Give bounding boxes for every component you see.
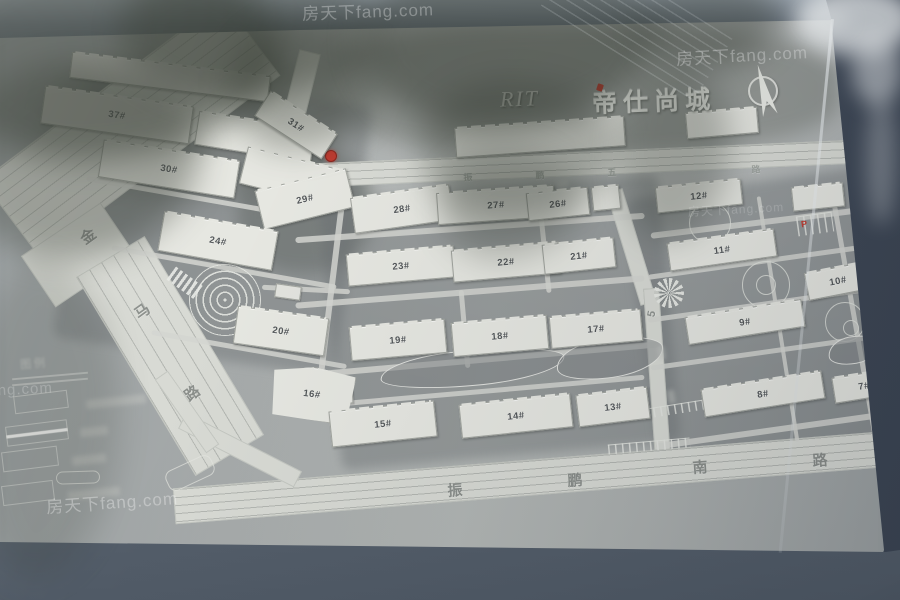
photo-vignette (0, 0, 900, 600)
community-map-sign-photo: 37#30#31#29#28#27#26#24#23#22#21#20#19#1… (0, 0, 900, 600)
